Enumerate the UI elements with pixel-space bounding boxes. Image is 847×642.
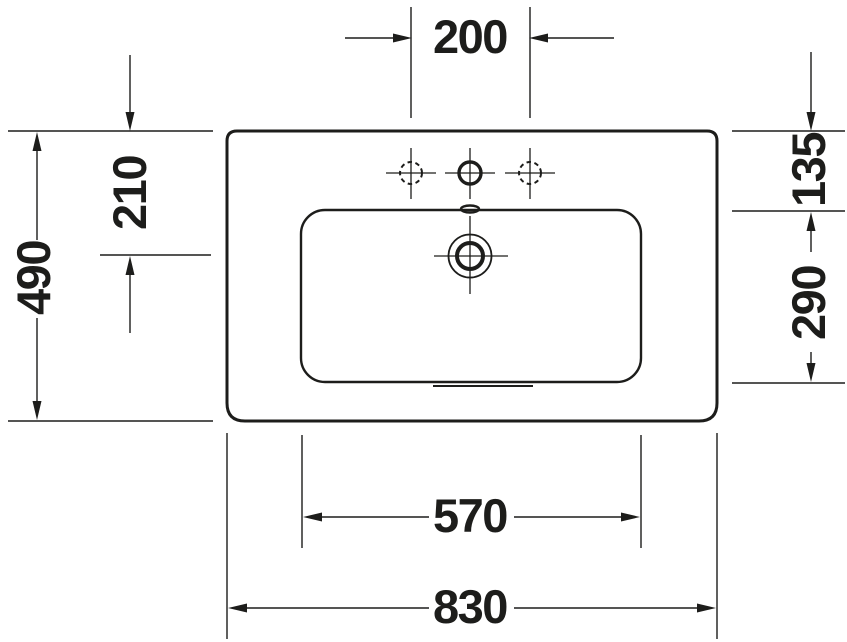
arrowhead-left-icon [529, 34, 548, 43]
dimension-label: 830 [433, 580, 507, 633]
technical-drawing-canvas: 200 490 210 135 [0, 0, 847, 642]
dimension-edge-to-bowl: 135 [732, 52, 845, 211]
tap-hole-center [445, 148, 495, 199]
arrowhead-up-icon [126, 256, 135, 275]
dimension-label: 570 [433, 489, 507, 542]
tap-hole-left [386, 148, 436, 199]
dimension-label: 200 [433, 10, 507, 63]
arrowhead-left-icon [228, 604, 247, 613]
arrowhead-down-icon [807, 112, 816, 131]
dimension-label: 135 [782, 133, 835, 207]
arrowhead-left-icon [303, 513, 322, 522]
dimension-label: 490 [7, 241, 60, 315]
dimension-tap-hole-spacing: 200 [345, 7, 614, 118]
dimension-label: 290 [782, 266, 835, 340]
drain [434, 216, 508, 294]
bowl-outline [301, 210, 641, 382]
basin-body [227, 131, 717, 421]
tap-holes [386, 148, 555, 199]
arrowhead-down-icon [807, 363, 816, 382]
dimension-label: 210 [103, 156, 156, 230]
arrowhead-right-icon [697, 604, 716, 613]
dimension-bowl-width: 570 [302, 435, 641, 548]
dimension-edge-to-drain: 210 [100, 55, 211, 333]
washbasin-dimension-drawing: 200 490 210 135 [0, 0, 847, 642]
arrowhead-down-icon [126, 112, 135, 131]
arrowhead-right-icon [621, 513, 640, 522]
arrowhead-right-icon [393, 34, 412, 43]
dimension-bowl-depth: 290 [732, 212, 845, 383]
arrowhead-up-icon [33, 132, 42, 151]
arrowhead-down-icon [33, 401, 42, 420]
arrowhead-up-icon [807, 212, 816, 231]
tap-hole-right [505, 148, 555, 199]
